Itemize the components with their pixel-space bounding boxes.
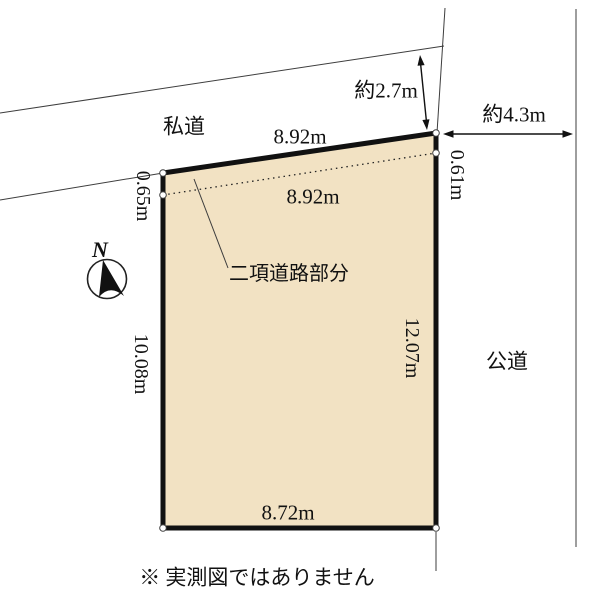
arrowhead-up-icon — [418, 55, 425, 66]
boundary-point-marker — [433, 525, 440, 532]
public-road-label: 公道 — [486, 352, 528, 373]
dimension-setback-line: 8.92m — [286, 187, 339, 208]
boundary-point-marker — [160, 525, 167, 532]
boundary-point-marker — [433, 130, 440, 137]
dimension-right-edge: 12.07m — [402, 318, 422, 379]
boundary-point-marker — [160, 192, 167, 199]
dimension-right-setback: 0.61m — [447, 150, 467, 201]
site-plan-diagram: N 私道 公道 8.92m 8.92m 8.72m 10.08m 12.07m … — [0, 0, 600, 600]
dimension-left-setback: 0.65m — [133, 171, 153, 222]
dimension-private-road-width: 約2.7m — [354, 81, 418, 102]
compass-north-label: N — [92, 239, 108, 261]
arrowhead-right-icon — [563, 130, 574, 137]
arrowhead-left-icon — [443, 130, 454, 137]
footnote-disclaimer: ※ 実測図ではありません — [139, 568, 375, 589]
boundary-point-marker — [433, 150, 440, 157]
dimension-left-edge: 10.08m — [131, 334, 151, 395]
dimension-top-edge: 8.92m — [273, 127, 326, 148]
arrowhead-down-icon — [422, 119, 429, 130]
dimension-bottom-edge: 8.72m — [261, 503, 314, 524]
dimension-public-road-width: 約4.3m — [482, 105, 546, 126]
setback-area-label: 二項道路部分 — [229, 264, 349, 284]
private-road-label: 私道 — [163, 117, 205, 138]
private-road-width-arrow-line — [420, 58, 427, 127]
boundary-point-marker — [160, 170, 167, 177]
public-road-left-edge-line — [437, 8, 445, 133]
